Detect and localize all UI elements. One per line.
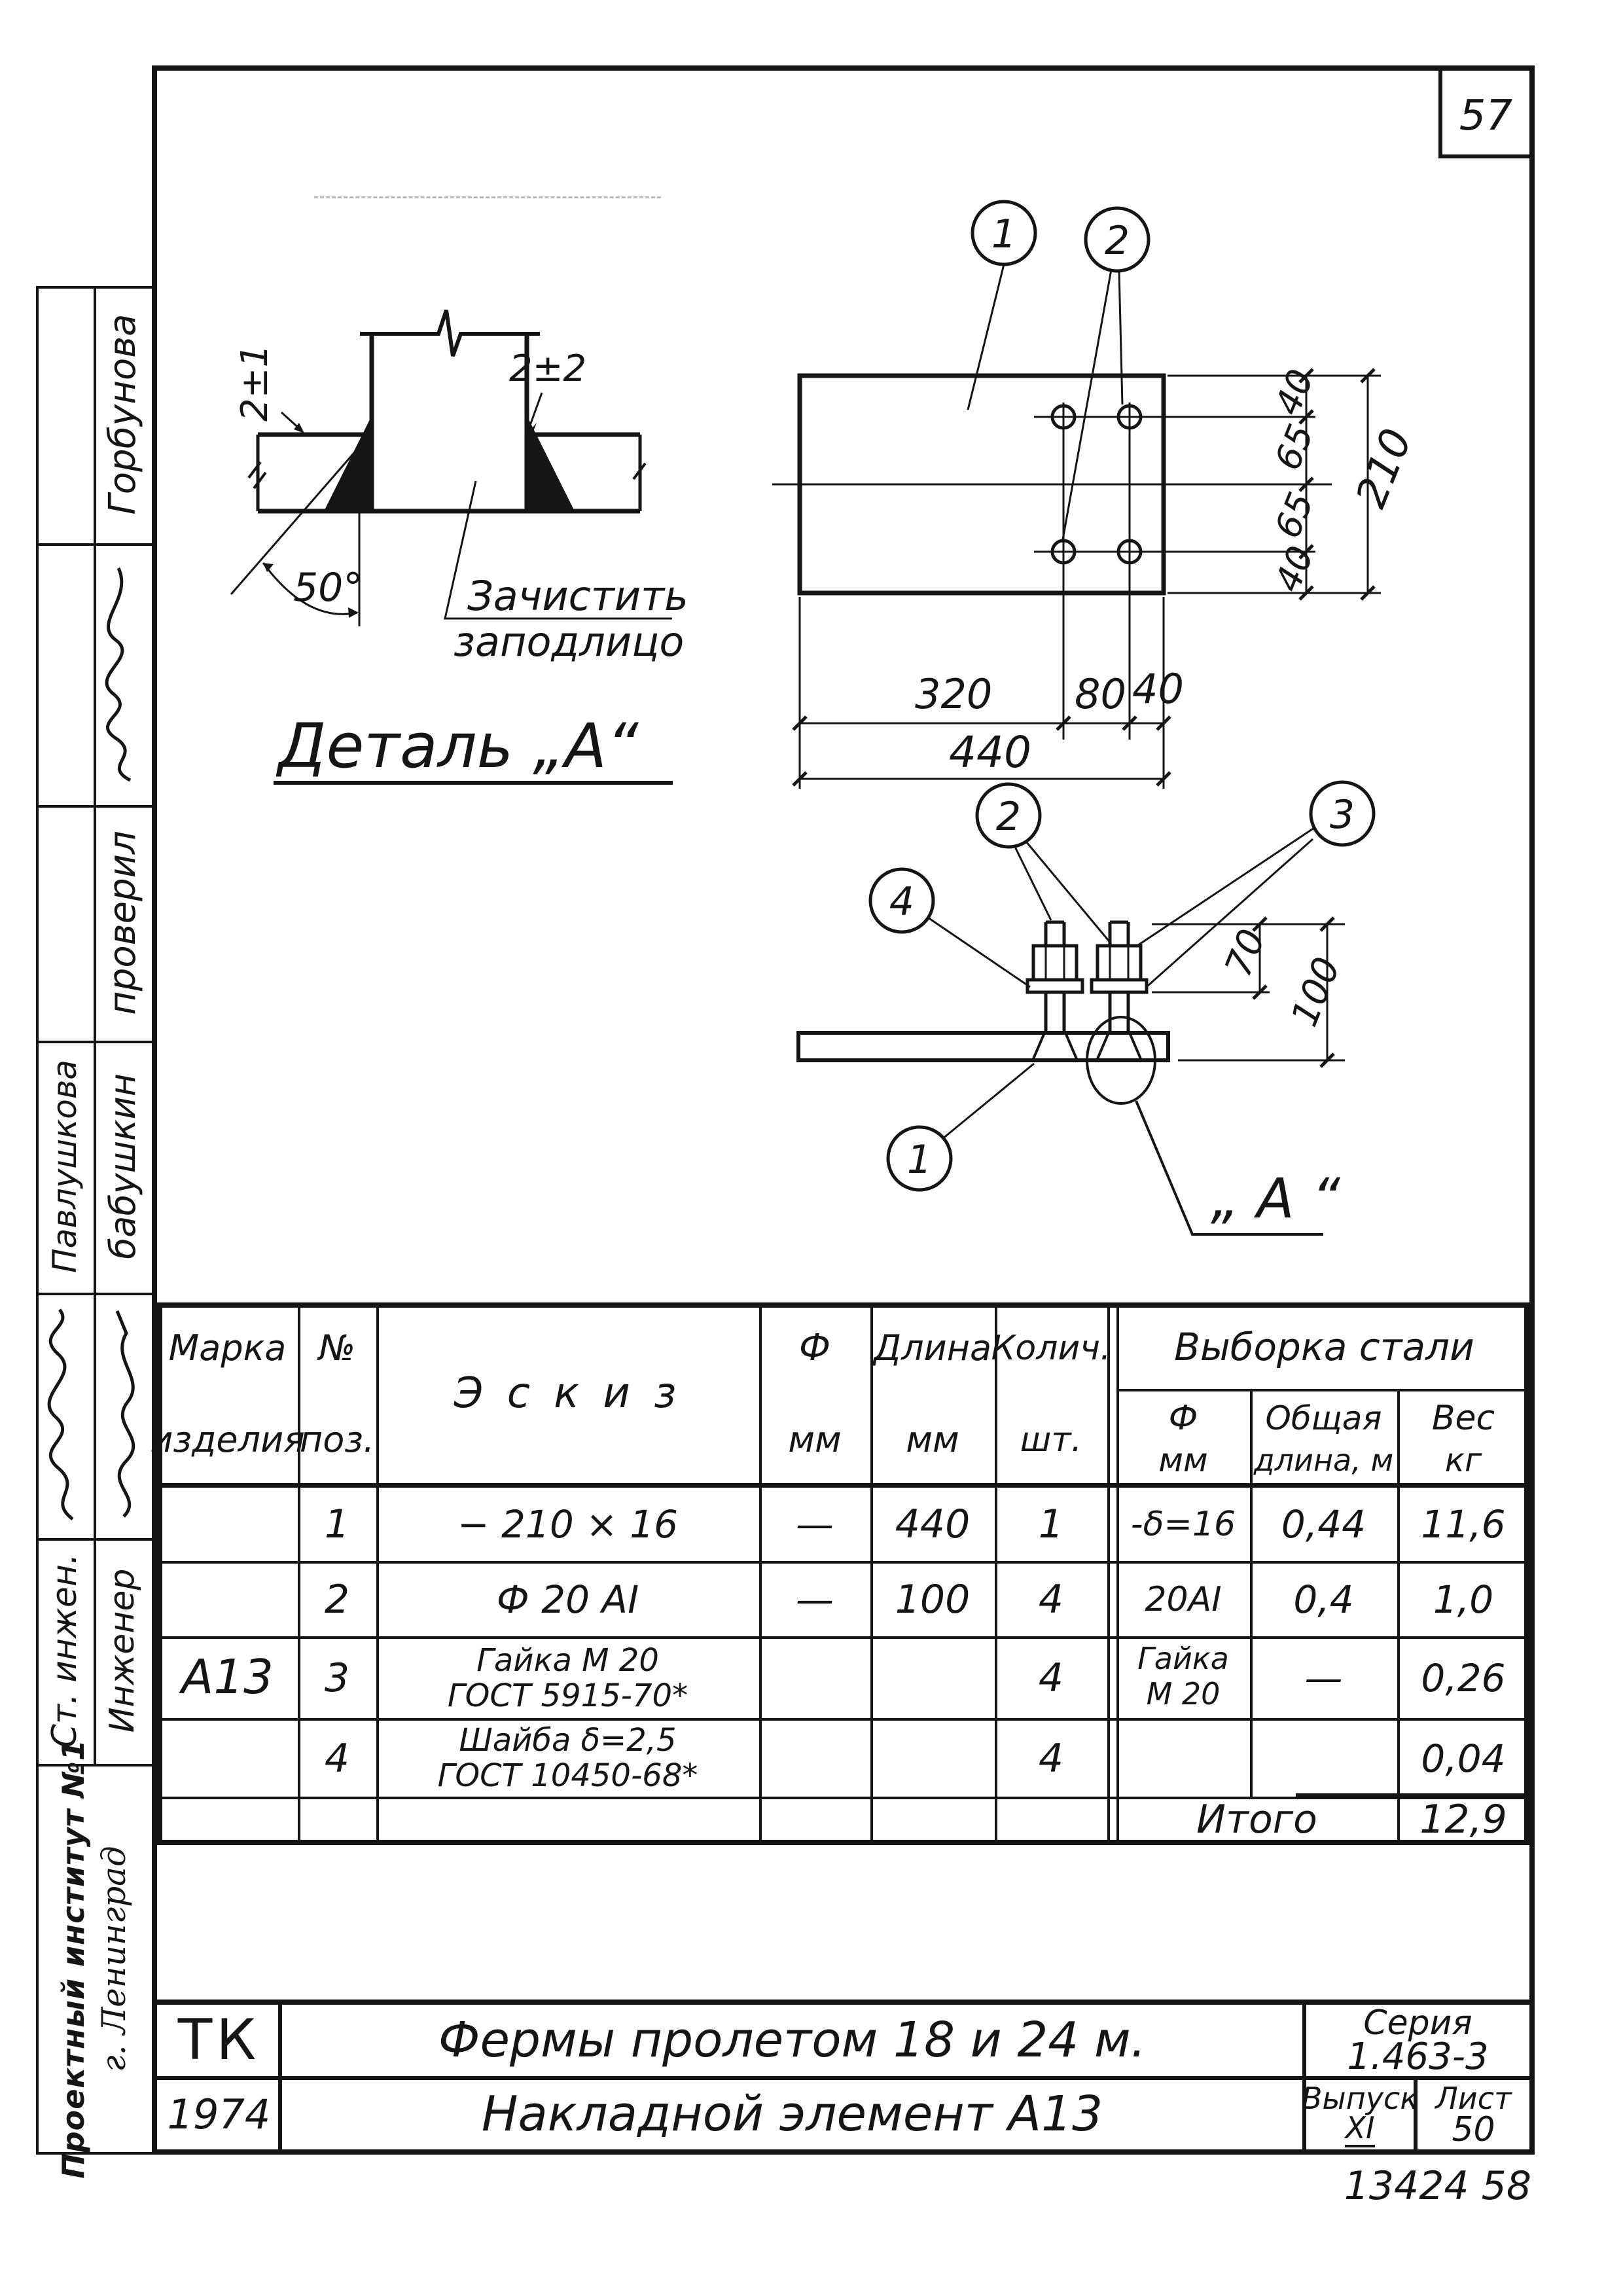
callout-leader <box>928 918 1030 987</box>
signature <box>93 556 152 792</box>
dim-210: 210 <box>1347 422 1421 514</box>
sidebar-line <box>36 1293 157 1295</box>
signature-stroke <box>96 563 149 785</box>
dim-gap-top: 2±2 <box>509 348 586 390</box>
cell-gl: — <box>1253 1639 1395 1718</box>
callout-leader <box>1063 270 1122 539</box>
sheetnum-box-bottom <box>1438 154 1535 158</box>
cell-sketch2: ГОСТ 10450-68* <box>379 1759 757 1793</box>
sidebar-name-top: Горбунова <box>96 293 149 535</box>
cell-d: — <box>762 1564 868 1636</box>
anchor-skirt <box>1033 1033 1077 1060</box>
cell-gl: 0,44 <box>1253 1488 1395 1561</box>
th-gl-2: длина, м <box>1253 1443 1395 1478</box>
frame-top <box>152 65 1535 71</box>
th-group: Выборка стали <box>1119 1325 1529 1369</box>
washer <box>1092 980 1147 992</box>
institute-city: г. Ленинград <box>95 1846 133 2072</box>
dim-65-b: 65 <box>1267 487 1322 544</box>
total-value: 12,9 <box>1400 1799 1527 1840</box>
th-marka-1: Марка <box>160 1329 294 1368</box>
drawing-sheet: 57 Горбунова проверил Павлушкова бабушки… <box>0 0 1623 2296</box>
th-d-2: мм <box>762 1420 868 1460</box>
plate-bar <box>798 1033 1168 1060</box>
th-gw-2: кг <box>1400 1443 1527 1478</box>
th-len-1: Длина <box>873 1329 992 1368</box>
nut-facets <box>1046 946 1064 980</box>
plate-ends <box>258 435 640 511</box>
table-row-line <box>157 1483 1529 1488</box>
dim-gap-left: 2±1 <box>234 344 276 422</box>
frame-bottom <box>152 2149 1535 2155</box>
callout-2: 2 <box>1105 218 1130 264</box>
sidebar-line <box>36 543 157 546</box>
stamp-title-2: Накладной элемент А13 <box>282 2080 1302 2149</box>
washer <box>1027 980 1082 992</box>
sidebar-line <box>36 2152 157 2155</box>
callout-3: 3 <box>1330 792 1355 838</box>
cell-sketch: Гайка М 20 <box>379 1643 757 1678</box>
sidebar-line <box>36 286 157 289</box>
sidebar-checked-label: проверил <box>96 812 149 1034</box>
nut-facets <box>1110 946 1128 980</box>
angle-label: 50° <box>293 565 363 611</box>
stamp-series-value: 1.463-3 <box>1306 2041 1529 2073</box>
stamp-series-label: Серия <box>1306 2007 1529 2039</box>
cell-gw: 1,0 <box>1400 1564 1527 1636</box>
institute-name: Проектный институт №1 <box>56 1739 91 2179</box>
dim-65-a: 65 <box>1267 419 1322 476</box>
callout-2: 2 <box>996 794 1021 840</box>
total-label: Итого <box>1119 1799 1395 1840</box>
th-gw-1: Вес <box>1400 1401 1527 1436</box>
bolt-stud <box>1046 922 1064 946</box>
detail-title: Деталь „А“ <box>276 711 639 782</box>
dim-40-top: 40 <box>1267 364 1322 421</box>
th-gd-1: Ф <box>1119 1401 1247 1436</box>
cell-gl: 0,4 <box>1253 1564 1395 1636</box>
note-line1: Зачистить <box>467 572 688 620</box>
sidebar-role-right: Инженер <box>96 1533 149 1768</box>
dim-70: 70 <box>1217 924 1274 982</box>
frame-right <box>1529 65 1535 2155</box>
cell-pos: 1 <box>300 1488 374 1561</box>
cell-sketch: − 210 × 16 <box>379 1488 757 1561</box>
label-a: „ А “ <box>1211 1166 1340 1230</box>
cell-d: — <box>762 1488 868 1561</box>
stamp-org: ТК <box>160 2005 278 2076</box>
sidebar-institute-cell: Проектный институт №1 г. Ленинград <box>42 1776 147 2142</box>
signature <box>96 1297 149 1533</box>
cell-len: 440 <box>873 1488 992 1561</box>
sheet-number: 57 <box>1442 79 1529 154</box>
callout-leader <box>942 1064 1034 1139</box>
th-qty-2: шт. <box>997 1420 1105 1460</box>
bolt-stud-lower <box>1046 992 1064 1033</box>
bolt-nut <box>1033 946 1077 980</box>
scan-artifact <box>314 196 661 198</box>
cell-qty: 4 <box>997 1564 1105 1636</box>
cut-marks <box>249 462 645 488</box>
cell-sketch: Ф 20 АI <box>379 1564 757 1636</box>
note-line2: заподлицо <box>454 618 684 666</box>
callout-1: 1 <box>907 1137 932 1183</box>
anchor-skirt <box>1097 1033 1141 1060</box>
th-gd-2: мм <box>1119 1443 1247 1478</box>
th-qty-1: Колич. <box>997 1329 1105 1368</box>
stamp-year: 1974 <box>160 2080 278 2149</box>
cell-gd: 20АI <box>1119 1564 1247 1636</box>
cell-gd: -δ=16 <box>1119 1488 1247 1561</box>
figure-detail-a: 2±2 2±1 50° Зачистить заподлицо Деталь „… <box>183 281 707 805</box>
th-sketch: Э с к и з <box>379 1371 757 1417</box>
th-d-1: Ф <box>762 1329 868 1368</box>
th-len-2: мм <box>873 1420 992 1460</box>
sidebar-role-left: Ст. инжен. <box>39 1533 91 1768</box>
cell-gw: 0,26 <box>1400 1639 1527 1718</box>
cell-pos: 2 <box>300 1564 374 1636</box>
th-gl-1: Общая <box>1253 1401 1395 1436</box>
signature-stroke <box>40 1307 90 1523</box>
stamp-issue-label: Выпуск <box>1306 2083 1414 2114</box>
cell-gw: 0,04 <box>1400 1721 1527 1797</box>
th-pos-2: поз. <box>300 1420 374 1460</box>
table-col-line <box>1107 1302 1110 1845</box>
table-row-line <box>1116 1389 1529 1391</box>
bolt-stud <box>1110 922 1128 946</box>
plate-edges <box>258 435 640 511</box>
cell-sketch: Шайба δ=2,5 <box>379 1723 757 1757</box>
bolt-stud-lower <box>1110 992 1128 1033</box>
bolt-nut <box>1097 946 1141 980</box>
cell-gw: 11,6 <box>1400 1488 1527 1561</box>
signature <box>39 1297 91 1533</box>
callout-leader <box>968 264 1004 410</box>
cell-sketch2: ГОСТ 5915-70* <box>379 1678 757 1713</box>
sidebar-line <box>36 805 157 808</box>
stamp-issue-number: XI <box>1345 2112 1374 2147</box>
weld-left <box>324 416 372 511</box>
sidebar-name-right: бабушкин <box>96 1049 149 1284</box>
cell-qty: 4 <box>997 1721 1105 1797</box>
weld-right <box>527 416 575 511</box>
dim-40-bottom: 40 <box>1132 665 1184 713</box>
cell-qty: 4 <box>997 1639 1105 1718</box>
callout-1: 1 <box>991 211 1016 257</box>
stamp-sheet-label: Лист <box>1418 2083 1529 2114</box>
stamp-top <box>157 2000 1529 2005</box>
cell-pos: 4 <box>300 1721 374 1797</box>
cell-len: 100 <box>873 1564 992 1636</box>
cell-marka: А13 <box>160 1636 294 1718</box>
frame-left <box>152 65 157 2155</box>
cell-pos: 3 <box>300 1639 374 1718</box>
stamp-title-1: Фермы пролетом 18 и 24 м. <box>282 2005 1302 2076</box>
sidebar-name-left: Павлушкова <box>39 1049 91 1284</box>
figure-side-view: 2 3 4 1 70 100 „ А “ <box>753 707 1414 1270</box>
callout-4: 4 <box>889 879 914 925</box>
doc-code: 13424 58 <box>1302 2160 1531 2212</box>
column-edges <box>372 334 527 511</box>
dim-40-low: 40 <box>1267 541 1322 598</box>
stamp-sheet-value: 50 <box>1418 2114 1529 2145</box>
cell-gd: Гайка <box>1119 1641 1247 1676</box>
dim-100: 100 <box>1283 952 1349 1032</box>
cell-qty: 1 <box>997 1488 1105 1561</box>
th-pos-1: № <box>300 1329 374 1368</box>
cell-gd2: М 20 <box>1119 1677 1247 1711</box>
stamp-issue-value: XI <box>1306 2114 1414 2145</box>
sidebar-line <box>36 1041 157 1043</box>
th-marka-2: изделия <box>160 1420 294 1460</box>
signature-stroke <box>98 1307 147 1523</box>
